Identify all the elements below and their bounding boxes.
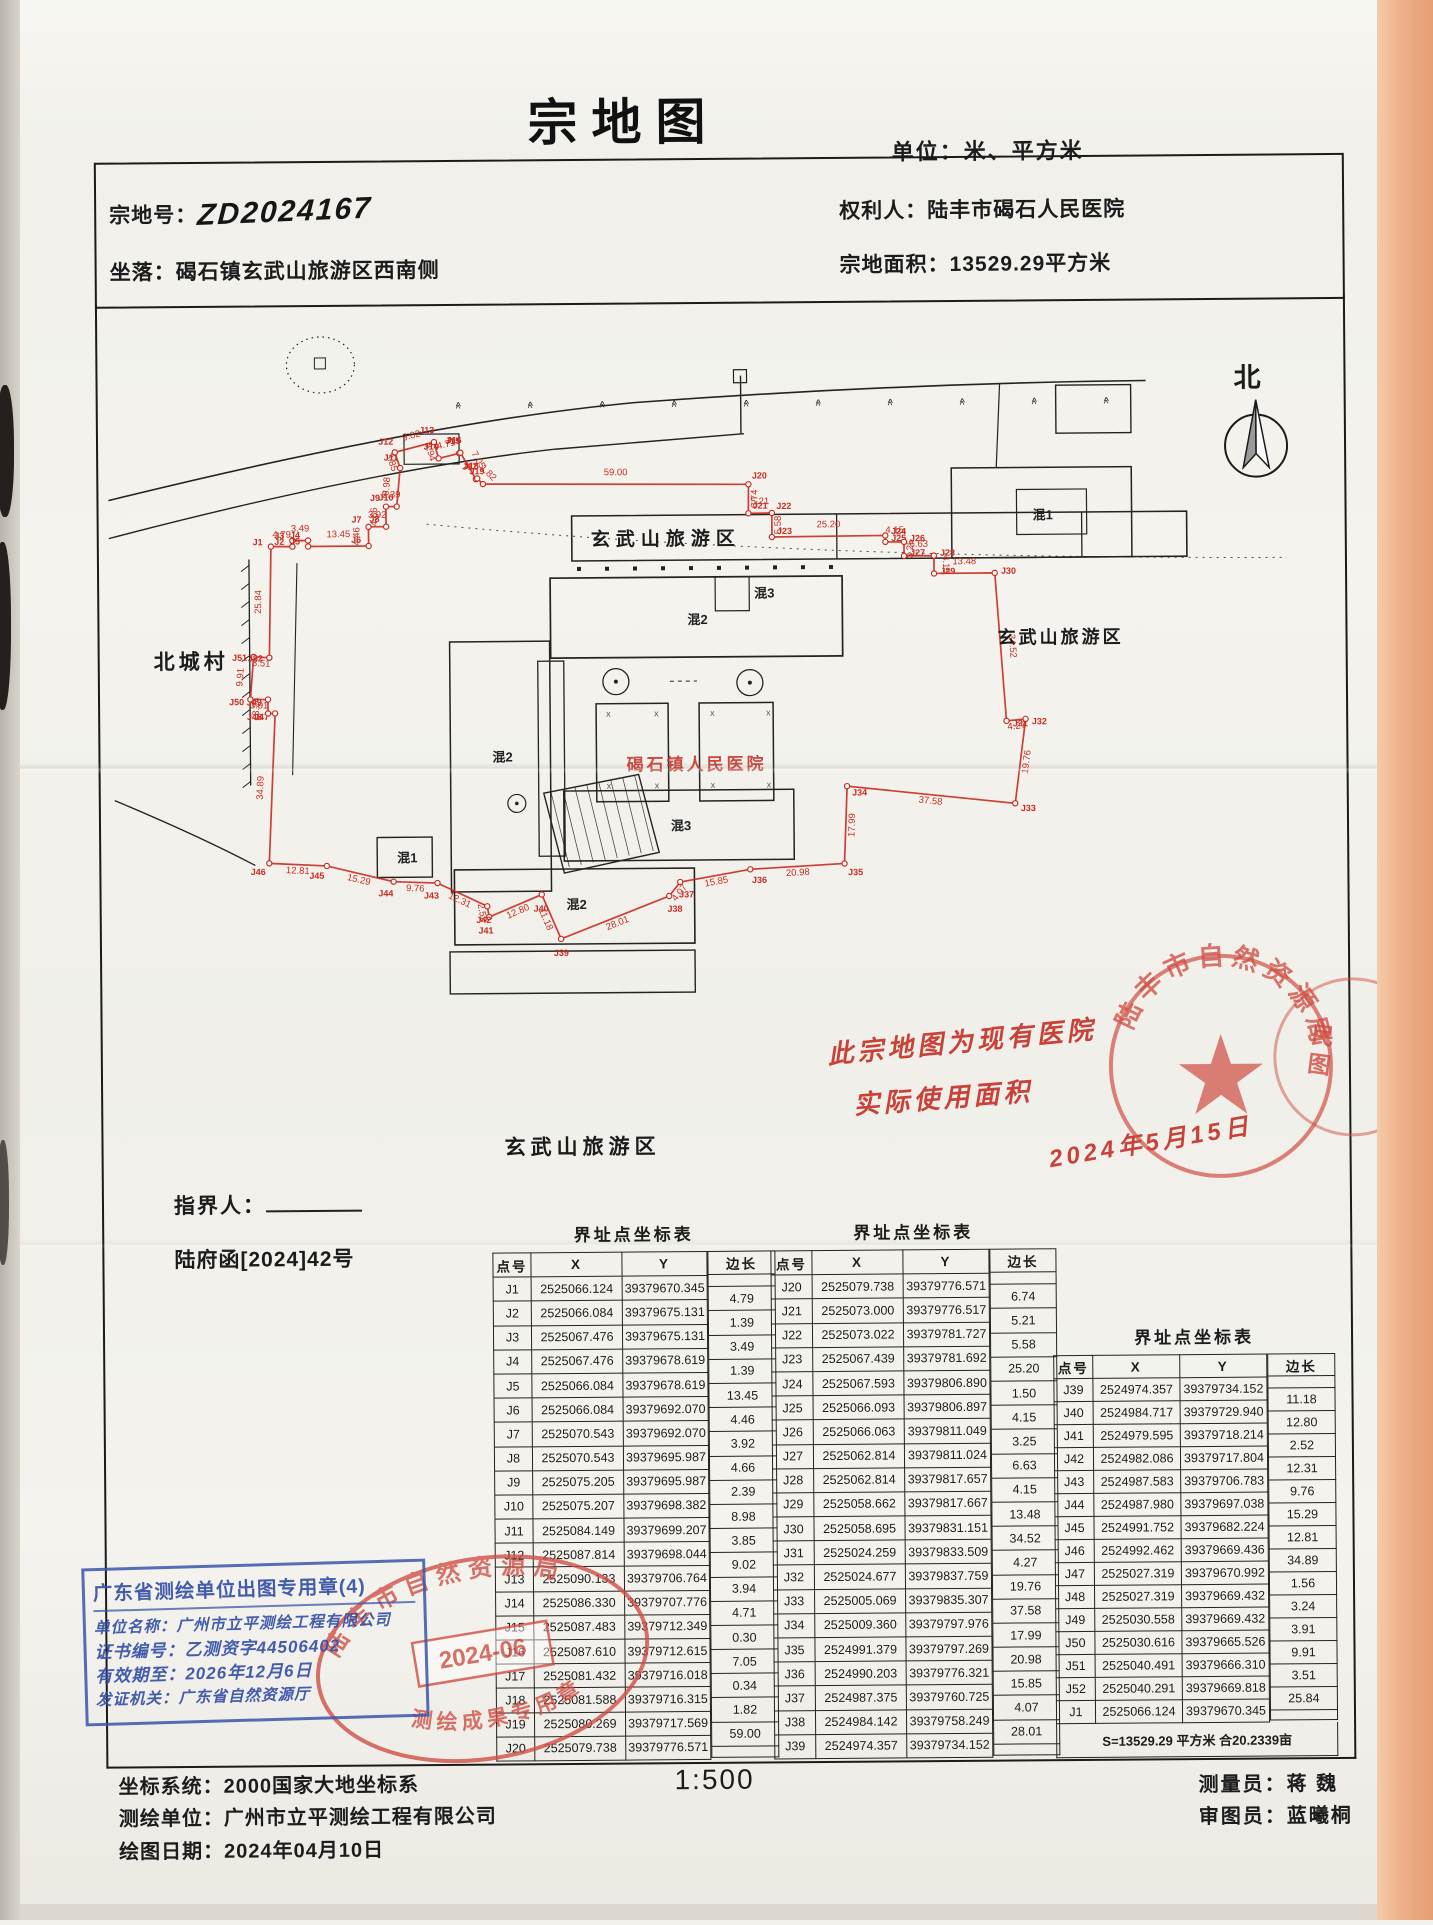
building-label: 混3: [671, 818, 691, 833]
boundary-point-label: J13: [419, 425, 434, 435]
svg-text:x: x: [655, 780, 660, 790]
boundary-point-label: J23: [777, 526, 792, 536]
scan-blob: [0, 385, 14, 517]
boundary-length-label: 9.76: [406, 883, 425, 895]
boundary-length-label: 15.29: [346, 872, 372, 888]
boundary-point-label: J5: [290, 537, 300, 547]
fold-crease: [0, 1238, 1433, 1250]
building-label: 混1: [397, 850, 417, 865]
blue-survey-stamp: 广东省测绘单位出图专用章(4) 单位名称：广州市立平测绘工程有限公司 证书编号：…: [81, 1559, 429, 1727]
boundary-point-label: J3: [274, 531, 284, 541]
svg-text:x: x: [606, 709, 611, 719]
svg-text:^: ^: [1104, 396, 1110, 408]
boundary-point-label: J12: [378, 437, 393, 447]
boundary-point-label: J20: [752, 470, 767, 480]
boundary-length-label: 59.00: [604, 467, 628, 478]
boundary-point-label: J19: [469, 466, 484, 476]
map-label-tourist-area-right: 玄武山旅游区: [997, 623, 1123, 650]
red-round-stamp: 陆丰市自然资源局: [1096, 941, 1350, 1195]
svg-text:^: ^: [600, 400, 606, 412]
boundary-point-label: J22: [776, 501, 791, 511]
boundary-point-label: J21: [753, 501, 768, 511]
boundary-point-label: J38: [667, 904, 682, 914]
building-label: 混3: [754, 585, 774, 600]
boundary-point-label: J35: [848, 867, 863, 877]
building-label: 混2: [687, 612, 707, 627]
boundary-point-label: J32: [1032, 716, 1047, 726]
building-label: 混2: [567, 897, 587, 912]
boundary-length-label: 12.31: [446, 891, 472, 911]
boundary-point-label: J34: [852, 787, 867, 797]
boundary-point-label: J44: [378, 888, 393, 898]
boundary-length-label: 25.20: [816, 519, 840, 530]
svg-text:^: ^: [888, 397, 894, 409]
svg-text:^: ^: [816, 398, 822, 410]
boundary-point-label: J1: [253, 537, 263, 547]
svg-text:x: x: [766, 707, 771, 717]
boundary-length-label: 17.99: [846, 813, 858, 837]
boundary-length-label: 25.84: [253, 590, 264, 614]
boundary-point-label: J42: [476, 915, 491, 925]
blue-stamp-title: 广东省测绘单位出图专用章(4): [92, 1568, 415, 1612]
scan-left-strip: [0, 0, 20, 1920]
boundary-point-label: J16: [447, 435, 462, 445]
boundary-point-label: J14: [424, 442, 439, 452]
boundary-length-label: 28.01: [605, 914, 631, 933]
scan-bottom-shade: [0, 1904, 1433, 1920]
map-label-tourist-area-bottom: 玄武山旅游区: [504, 1130, 660, 1161]
boundary-length-label: 12.80: [505, 902, 531, 921]
svg-text:x: x: [711, 780, 716, 790]
boundary-length-label: 13.45: [326, 529, 350, 540]
boundary-point-label: J8: [369, 514, 379, 524]
north-arrow-icon: [1214, 393, 1299, 486]
svg-text:^: ^: [744, 399, 750, 411]
boundary-point-label: J27: [910, 548, 925, 558]
boundary-length-label: 20.98: [786, 867, 810, 879]
boundary-length-label: 37.58: [918, 795, 943, 808]
boundary-length-label: 9.91: [234, 668, 246, 687]
boundary-point-label: J52: [248, 654, 263, 664]
boundary-point-label: J48: [247, 712, 262, 722]
map-label-village-left: 北城村: [154, 646, 229, 677]
svg-text:陆丰市自然资源局: 陆丰市自然资源局: [1109, 941, 1337, 1053]
boundary-point-label: J37: [679, 889, 694, 899]
boundary-point-label: J6: [351, 535, 361, 545]
svg-text:x: x: [767, 779, 772, 789]
building-label: 混1: [1033, 507, 1053, 522]
svg-text:^: ^: [1032, 396, 1038, 408]
boundary-point-label: J40: [534, 903, 549, 913]
svg-text:^: ^: [672, 399, 678, 411]
boundary-point-label: J36: [752, 875, 767, 885]
boundary-point-label: J33: [1021, 803, 1036, 813]
svg-text:^: ^: [528, 400, 534, 412]
boundary-point-label: J43: [424, 891, 439, 901]
svg-text:^: ^: [960, 397, 966, 409]
boundary-point-label: J30: [1001, 566, 1016, 576]
svg-text:x: x: [654, 708, 659, 718]
boundary-point-label: J10: [378, 492, 393, 502]
scan-pink-strip: [1377, 0, 1433, 1920]
boundary-point-label: J51: [232, 653, 247, 663]
boundary-length-label: 13.48: [952, 556, 976, 567]
boundary-length-label: 34.89: [255, 776, 267, 800]
boundary-point-label: J39: [554, 948, 569, 958]
svg-text:^: ^: [456, 401, 462, 413]
boundary-point-label: J46: [251, 867, 266, 877]
boundary-length-label: 12.81: [286, 865, 310, 877]
boundary-point-label: J50: [229, 697, 244, 707]
fold-crease: [0, 762, 1433, 774]
map-label-tourist-area-top: 玄武山旅游区: [591, 524, 741, 552]
svg-text:x: x: [710, 708, 715, 718]
boundary-point-label: J29: [940, 566, 955, 576]
boundary-point-label: J7: [351, 515, 361, 525]
boundary-point-label: J41: [478, 926, 493, 936]
boundary-point-label: J45: [309, 871, 324, 881]
